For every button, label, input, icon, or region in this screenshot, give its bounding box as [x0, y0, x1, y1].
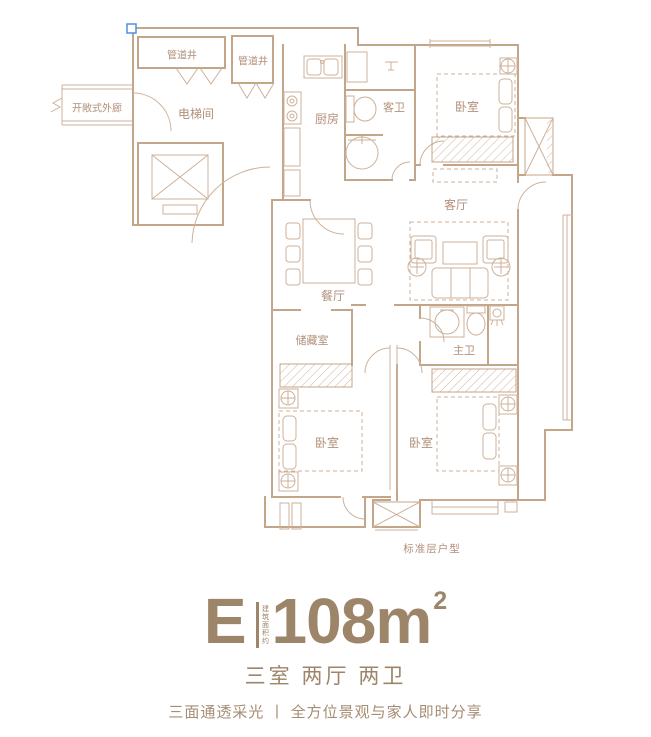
wardrobe	[280, 137, 516, 392]
room-label-kitchen: 厨房	[315, 111, 339, 126]
toilet-icon	[467, 306, 485, 335]
door-arc	[420, 318, 444, 342]
unit-letter: E	[204, 592, 246, 651]
room-label-guest-bath: 客卫	[383, 100, 405, 114]
shaft-x-icon	[525, 118, 553, 175]
room-label-bedroom-south: 卧室	[409, 435, 433, 450]
kitchen-sink-icon	[304, 56, 342, 78]
shower-icon	[490, 306, 504, 326]
dining-table	[286, 219, 372, 285]
room-label-pipe-shaft-a: 管道井	[167, 49, 197, 62]
door-arc	[310, 200, 344, 234]
door-arc	[133, 93, 171, 131]
bed	[437, 58, 517, 136]
room-label-open-corridor: 开敞式外廊	[72, 102, 122, 115]
area-value: 108m	[272, 592, 432, 651]
door-arc	[397, 348, 422, 373]
unit-info-block: E 建筑面积约 108m 2 三室 两厅 两卫 三面通透采光 丨 全方位景观与家…	[0, 585, 651, 722]
door-arc	[392, 162, 410, 180]
door-arc	[343, 497, 365, 519]
door-arc	[518, 182, 546, 210]
area-note-vertical: 建筑面积约	[262, 605, 269, 645]
bed	[437, 395, 517, 485]
room-label-pipe-shaft-b: 管道井	[238, 55, 268, 68]
washbasin-icon	[347, 52, 398, 82]
room-label-elevator-hall: 电梯间	[178, 107, 214, 121]
kitchen-counter	[284, 128, 300, 196]
room-label-bedroom-southwest: 卧室	[315, 435, 339, 450]
room-label-bedroom-north: 卧室	[455, 99, 479, 114]
door-arc	[365, 348, 390, 373]
rooms-summary: 三室 两厅 两卫	[0, 660, 651, 690]
tagline: 三面通透采光 丨 全方位景观与家人即时分享	[0, 701, 651, 722]
stove-icon	[284, 92, 301, 124]
basin-icon	[346, 136, 378, 169]
unit-title-row: E 建筑面积约 108m 2	[0, 585, 651, 651]
room-label-living-room: 客厅	[444, 197, 468, 212]
room-label-storage: 储藏室	[296, 333, 329, 347]
elevator-icon	[152, 155, 208, 214]
basin-icon	[430, 307, 464, 337]
title-divider	[256, 602, 259, 648]
room-label-dining-room: 餐厅	[321, 288, 345, 303]
room-label-master-bath: 主卫	[453, 344, 475, 357]
plan-caption: 标准层户型	[403, 542, 461, 555]
windows-and-details	[51, 39, 572, 530]
selection-handle[interactable]	[127, 24, 136, 33]
floor-plan: 管道井 管道井 开敞式外廊 电梯间 厨房 客卫 卧室 客厅 餐厅 储藏室 主卫 …	[0, 0, 651, 565]
sofa-set	[408, 222, 510, 300]
coffee-table	[443, 242, 477, 264]
area-superscript: 2	[433, 587, 447, 616]
shaft-x-icon	[373, 502, 420, 527]
toilet-icon	[346, 96, 376, 122]
walls	[133, 28, 572, 527]
door-arc	[192, 167, 270, 243]
